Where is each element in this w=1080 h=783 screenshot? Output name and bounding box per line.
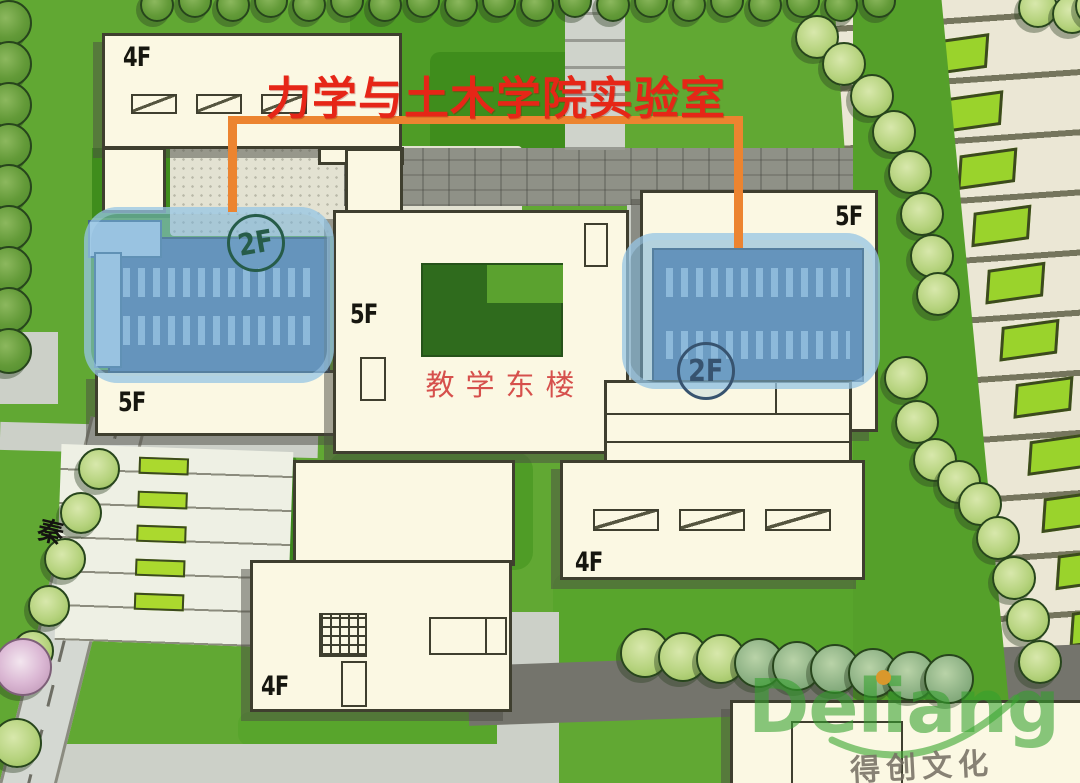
floor-circle-left: 2F [227, 214, 285, 272]
planting-bed [1027, 433, 1080, 476]
skylight-slat [593, 509, 659, 531]
campus-site-plan: 4F 5F 5F 教学东楼 5F [0, 0, 1080, 783]
planting-bed [971, 205, 1031, 248]
annotation-bracket-right [734, 116, 743, 248]
tree [0, 164, 32, 210]
building-teaching-east: 5F [333, 210, 629, 454]
parking-island [137, 491, 188, 510]
tree [292, 0, 326, 22]
parking-island [139, 457, 190, 476]
tree [140, 0, 174, 22]
roof-opening [360, 357, 386, 401]
floor-circle-right: 2F [677, 342, 735, 400]
floor-label: 4F [575, 547, 602, 578]
floor-label: 5F [835, 201, 862, 232]
planting-bed [957, 147, 1017, 190]
floor-circle-right-label: 2F [688, 354, 723, 389]
road-stub [0, 332, 58, 404]
planting-bed [1042, 490, 1080, 533]
skylight-slat [679, 509, 745, 531]
building-bottom-right-court [604, 380, 852, 464]
tree [0, 123, 32, 169]
tree [216, 0, 250, 22]
floor-label: 4F [123, 42, 150, 73]
parking-island [134, 593, 185, 612]
building-center-north-wing [345, 148, 403, 214]
courtyard [421, 263, 563, 357]
floor-circle-left-label: 2F [236, 223, 277, 264]
annotation-bracket-left [228, 116, 237, 212]
tree [0, 82, 32, 128]
tree [178, 0, 212, 18]
grid-skylight [319, 613, 367, 657]
floor-label: 5F [350, 299, 377, 330]
building-name-label: 教学东楼 [398, 362, 613, 404]
building-bottom-center-upper [293, 460, 515, 566]
highlight-left-lab [84, 207, 334, 383]
skylight-slat [765, 509, 831, 531]
tree [672, 0, 706, 22]
roof-opening [584, 223, 608, 267]
tree [254, 0, 288, 18]
floor-label: 4F [261, 671, 288, 702]
building-bottom-right: 4F [560, 460, 865, 580]
watermark-dot-icon [876, 670, 891, 685]
watermark-caption: 得创文化 [849, 738, 995, 783]
planting-bed [985, 262, 1045, 305]
inner-line [607, 413, 849, 415]
tree [634, 0, 668, 18]
planting-bed [1056, 548, 1080, 591]
tree [0, 41, 32, 87]
skylight-slat [196, 94, 242, 114]
tree [795, 15, 839, 59]
planting-bed [999, 319, 1059, 362]
tree [0, 246, 32, 292]
inner-line [485, 619, 487, 653]
tree [0, 287, 32, 333]
parking-island [135, 559, 186, 578]
highlight-right-lab [622, 233, 880, 389]
courtyard-light [487, 265, 563, 303]
roof-opening [429, 617, 507, 655]
tree [0, 0, 32, 46]
tree [748, 0, 782, 22]
tree [710, 0, 744, 18]
floor-label: 5F [118, 387, 145, 418]
building-top-left-wing [102, 147, 166, 213]
skylight-slat [131, 94, 177, 114]
lawn-patch [238, 712, 506, 746]
tree [786, 0, 820, 18]
tree [0, 205, 32, 251]
inner-line [607, 441, 849, 443]
parking-island [136, 525, 187, 544]
road-south-horizontal [55, 744, 503, 783]
annotation-title: 力学与土木学院实验室 [266, 62, 726, 127]
building-bottom-center: 4F [250, 560, 512, 712]
roof-opening [341, 661, 367, 707]
planting-bed [1013, 376, 1073, 419]
planting-bed [1070, 605, 1080, 648]
